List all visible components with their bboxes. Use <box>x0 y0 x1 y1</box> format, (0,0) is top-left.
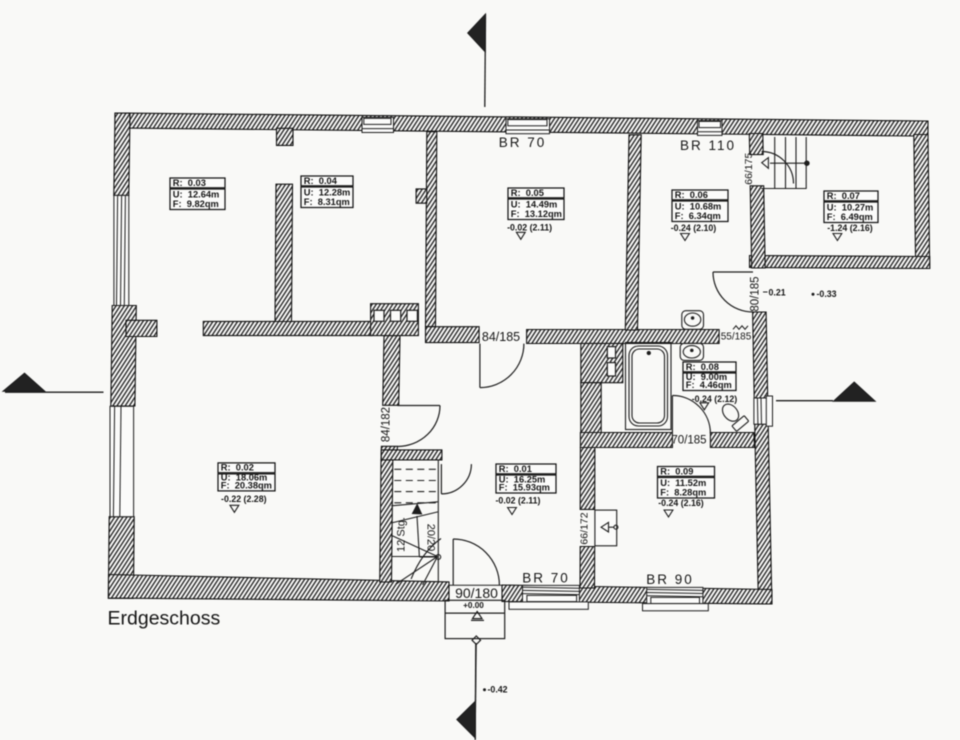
svg-text:R: 0.04: R: 0.04 <box>304 176 338 186</box>
svg-text:R: 0.03: R: 0.03 <box>173 178 206 188</box>
svg-text:55/185: 55/185 <box>721 332 752 343</box>
svg-text:0.21: 0.21 <box>769 287 786 297</box>
svg-text:-0.33: -0.33 <box>817 289 837 299</box>
svg-text:F: 4.46qm: F: 4.46qm <box>686 380 732 390</box>
svg-text:84/185: 84/185 <box>482 330 520 344</box>
svg-text:+0.00: +0.00 <box>463 601 484 610</box>
svg-text:-0.02 (2.11): -0.02 (2.11) <box>507 223 552 233</box>
svg-text:BR 70: BR 70 <box>499 135 547 150</box>
svg-text:12 Stg.: 12 Stg. <box>396 517 408 552</box>
svg-text:R: 0.01: R: 0.01 <box>499 464 532 474</box>
svg-text:-1.24 (2.16): -1.24 (2.16) <box>827 223 873 233</box>
svg-text:-0.02 (2.11): -0.02 (2.11) <box>496 496 541 506</box>
svg-text:BR 70: BR 70 <box>522 571 570 586</box>
svg-text:70/185: 70/185 <box>671 435 706 447</box>
svg-text:84/182: 84/182 <box>381 407 393 442</box>
svg-text:R: 0.07: R: 0.07 <box>827 191 860 201</box>
svg-text:F: 8.31qm: F: 8.31qm <box>304 197 350 207</box>
svg-text:BR 110: BR 110 <box>680 138 736 153</box>
svg-text:-0.42: -0.42 <box>488 685 508 695</box>
svg-text:-0.22 (2.28): -0.22 (2.28) <box>221 494 267 504</box>
svg-text:R: 0.05: R: 0.05 <box>511 188 544 198</box>
svg-text:F: 6.34qm: F: 6.34qm <box>675 211 721 221</box>
svg-text:-0.24 (2.10): -0.24 (2.10) <box>671 223 717 233</box>
svg-text:F: 20.38qm: F: 20.38qm <box>221 480 272 490</box>
svg-text:R: 0.06: R: 0.06 <box>675 190 708 200</box>
svg-text:Erdgeschoss: Erdgeschoss <box>108 608 221 630</box>
svg-text:BR 90: BR 90 <box>646 572 694 587</box>
svg-text:R: 0.02: R: 0.02 <box>221 463 254 473</box>
svg-text:20/20: 20/20 <box>425 524 437 552</box>
svg-text:F: 13.12qm: F: 13.12qm <box>511 209 562 219</box>
svg-text:66/175: 66/175 <box>743 152 755 184</box>
svg-text:80/185: 80/185 <box>750 276 762 311</box>
svg-text:F: 9.82qm: F: 9.82qm <box>173 199 219 209</box>
svg-text:66/172: 66/172 <box>579 512 591 544</box>
svg-text:F: 6.49qm: F: 6.49qm <box>827 212 873 222</box>
svg-text:F: 8.28qm: F: 8.28qm <box>660 487 706 497</box>
svg-text:-0.24 (2.16): -0.24 (2.16) <box>658 498 704 508</box>
svg-text:90/180: 90/180 <box>455 585 498 601</box>
svg-text:R: 0.09: R: 0.09 <box>660 466 693 476</box>
svg-text:F: 15.93qm: F: 15.93qm <box>499 482 550 492</box>
svg-text:R: 0.08: R: 0.08 <box>686 362 719 372</box>
svg-text:-0.24 (2.12): -0.24 (2.12) <box>692 394 738 404</box>
